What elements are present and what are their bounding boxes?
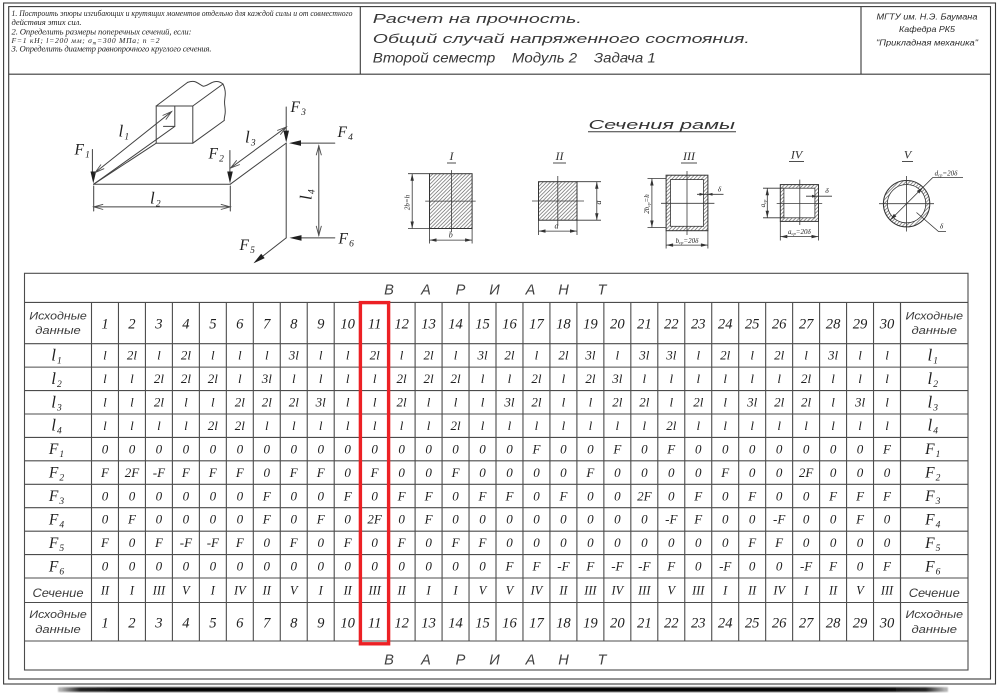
svg-text:2l: 2l [666, 418, 677, 433]
svg-text:II: II [100, 584, 110, 598]
svg-text:0: 0 [776, 559, 783, 574]
svg-text:9: 9 [317, 317, 325, 333]
svg-text:0: 0 [237, 512, 244, 527]
svg-text:24: 24 [718, 317, 733, 333]
svg-text:Кафедра РК5: Кафедра РК5 [899, 24, 955, 34]
svg-text:3l: 3l [854, 395, 866, 410]
svg-text:4: 4 [182, 317, 189, 333]
svg-text:l: l [400, 348, 404, 363]
svg-text:l: l [589, 418, 593, 433]
svg-text:0: 0 [722, 488, 729, 503]
svg-text:F: F [208, 465, 218, 480]
svg-text:l: l [643, 418, 647, 433]
svg-text:F: F [828, 488, 838, 503]
svg-text:0: 0 [560, 535, 567, 550]
svg-text:0: 0 [452, 441, 459, 456]
svg-text:24: 24 [718, 615, 733, 631]
svg-text:3l: 3l [315, 395, 327, 410]
svg-text:F: F [612, 441, 622, 456]
svg-text:0: 0 [102, 512, 109, 527]
svg-text:F: F [235, 465, 245, 480]
svg-text:F: F [397, 535, 407, 550]
svg-text:0: 0 [695, 441, 702, 456]
svg-text:I: I [426, 584, 432, 598]
svg-text:3l: 3l [288, 348, 300, 363]
svg-text:II: II [555, 149, 565, 163]
svg-text:0: 0 [560, 512, 567, 527]
svg-text:28: 28 [826, 615, 841, 631]
svg-text:0: 0 [264, 535, 271, 550]
svg-text:l: l [508, 371, 512, 386]
svg-text:III: III [682, 149, 696, 163]
svg-text:0: 0 [398, 465, 405, 480]
svg-text:F: F [882, 488, 892, 503]
svg-text:0: 0 [695, 465, 702, 480]
svg-text:III: III [691, 584, 705, 598]
svg-text:"Прикладная механика": "Прикладная механика" [876, 37, 979, 47]
svg-text:l: l [616, 418, 620, 433]
svg-text:0: 0 [371, 441, 378, 456]
svg-text:l: l [858, 418, 862, 433]
svg-text:0: 0 [210, 441, 217, 456]
svg-text:F: F [262, 512, 272, 527]
svg-text:И: И [489, 652, 500, 668]
svg-text:l: l [831, 371, 835, 386]
svg-text:Сечение: Сечение [909, 586, 960, 600]
svg-text:15: 15 [475, 317, 490, 333]
svg-text:Р: Р [456, 283, 466, 299]
svg-text:0: 0 [210, 559, 217, 574]
svg-text:l: l [508, 418, 512, 433]
svg-text:2l: 2l [370, 348, 381, 363]
svg-text:I: I [722, 584, 728, 598]
svg-text:0: 0 [587, 441, 594, 456]
svg-text:l: l [481, 371, 485, 386]
svg-text:-F: -F [557, 559, 570, 574]
svg-text:0: 0 [830, 535, 837, 550]
svg-text:F: F [828, 559, 838, 574]
svg-text:20: 20 [610, 317, 625, 333]
svg-text:0: 0 [533, 535, 540, 550]
svg-text:14: 14 [448, 615, 463, 631]
svg-text:0: 0 [884, 535, 891, 550]
svg-text:0: 0 [695, 535, 702, 550]
svg-text:0: 0 [102, 441, 109, 456]
svg-text:2l: 2l [450, 371, 461, 386]
svg-text:13: 13 [421, 317, 436, 333]
svg-text:F: F [666, 559, 676, 574]
svg-text:22: 22 [664, 317, 679, 333]
svg-text:2l: 2l [801, 371, 812, 386]
svg-text:0: 0 [264, 559, 271, 574]
svg-text:l: l [130, 418, 134, 433]
svg-text:0: 0 [183, 488, 190, 503]
svg-text:0: 0 [398, 512, 405, 527]
svg-text:0: 0 [317, 535, 324, 550]
svg-text:2l: 2l [450, 418, 461, 433]
svg-text:F: F [882, 441, 892, 456]
svg-text:0: 0 [857, 559, 864, 574]
svg-text:δ: δ [718, 185, 722, 194]
svg-text:3l: 3l [584, 348, 596, 363]
svg-text:Исходные: Исходные [906, 609, 964, 621]
svg-text:Второй семестр Модуль 2: Второй семестр Модуль 2 Задача 1 [373, 50, 656, 65]
svg-text:l: l [804, 348, 808, 363]
svg-text:11: 11 [368, 615, 382, 631]
svg-text:0: 0 [776, 465, 783, 480]
svg-text:l: l [319, 371, 323, 386]
svg-text:2: 2 [128, 317, 135, 333]
svg-text:l: l [831, 418, 835, 433]
svg-text:Исходные: Исходные [906, 310, 964, 322]
svg-text:А: А [525, 283, 536, 299]
svg-text:0: 0 [668, 535, 675, 550]
svg-text:10: 10 [340, 615, 355, 631]
svg-text:0: 0 [237, 559, 244, 574]
svg-text:3l: 3l [476, 348, 488, 363]
svg-text:0: 0 [210, 488, 217, 503]
svg-text:l: l [562, 418, 566, 433]
svg-text:19: 19 [583, 615, 598, 631]
svg-text:F: F [100, 535, 110, 550]
svg-text:0: 0 [452, 559, 459, 574]
svg-text:l: l [184, 418, 188, 433]
svg-text:25: 25 [745, 317, 760, 333]
svg-text:0: 0 [479, 559, 486, 574]
svg-text:2: 2 [128, 615, 135, 631]
svg-text:l: l [804, 418, 808, 433]
svg-text:F: F [262, 488, 272, 503]
svg-text:4: 4 [182, 615, 189, 631]
svg-text:0: 0 [506, 535, 513, 550]
svg-text:2l: 2l [127, 348, 138, 363]
svg-text:l: l [535, 418, 539, 433]
svg-text:0: 0 [425, 441, 432, 456]
svg-text:3: 3 [154, 615, 162, 631]
svg-text:17: 17 [529, 615, 544, 631]
svg-text:21: 21 [637, 615, 652, 631]
svg-text:26: 26 [772, 615, 787, 631]
svg-text:I: I [210, 584, 216, 598]
svg-text:F: F [316, 465, 326, 480]
svg-text:l: l [346, 371, 350, 386]
svg-text:l: l [696, 348, 700, 363]
svg-text:F: F [558, 488, 568, 503]
svg-text:0: 0 [506, 512, 513, 527]
svg-text:IV: IV [233, 584, 247, 598]
svg-text:0: 0 [479, 512, 486, 527]
svg-text:δ: δ [940, 222, 944, 231]
svg-text:15: 15 [475, 615, 490, 631]
svg-text:l: l [723, 371, 727, 386]
svg-text:l: l [777, 418, 781, 433]
svg-text:0: 0 [371, 488, 378, 503]
svg-text:2l: 2l [558, 348, 569, 363]
svg-text:0: 0 [237, 488, 244, 503]
svg-text:0: 0 [776, 488, 783, 503]
svg-text:l: l [319, 418, 323, 433]
svg-text:0: 0 [237, 441, 244, 456]
svg-text:F: F [100, 465, 110, 480]
svg-text:0: 0 [210, 512, 217, 527]
svg-text:данные: данные [35, 325, 81, 337]
svg-text:2l: 2l [424, 371, 435, 386]
svg-text:l: l [750, 418, 754, 433]
svg-text:II: II [262, 584, 272, 598]
svg-text:F: F [531, 559, 541, 574]
svg-text:2l: 2l [774, 348, 785, 363]
svg-text:III: III [880, 584, 894, 598]
svg-text:l: l [696, 371, 700, 386]
svg-text:0: 0 [614, 535, 621, 550]
svg-text:3l: 3l [261, 371, 273, 386]
svg-text:5: 5 [209, 615, 216, 631]
svg-text:А: А [420, 283, 431, 299]
svg-text:0: 0 [587, 535, 594, 550]
svg-text:-F: -F [800, 559, 813, 574]
svg-text:-F: -F [665, 512, 678, 527]
svg-text:Н: Н [558, 283, 569, 299]
svg-text:2F: 2F [637, 488, 653, 503]
svg-text:2F: 2F [367, 512, 383, 527]
svg-text:l: l [103, 348, 107, 363]
svg-text:0: 0 [749, 441, 756, 456]
svg-text:26: 26 [772, 317, 787, 333]
svg-text:0: 0 [344, 512, 351, 527]
svg-text:0: 0 [425, 465, 432, 480]
svg-text:Исходные: Исходные [29, 609, 87, 621]
svg-text:2l: 2l [181, 371, 192, 386]
svg-text:2l: 2l [235, 395, 246, 410]
svg-text:В: В [384, 652, 394, 668]
svg-text:0: 0 [129, 559, 136, 574]
svg-text:0: 0 [291, 441, 298, 456]
svg-text:0: 0 [398, 441, 405, 456]
svg-text:F: F [505, 559, 515, 574]
svg-text:l: l [292, 371, 296, 386]
svg-text:0: 0 [722, 512, 729, 527]
svg-text:13: 13 [421, 615, 436, 631]
svg-text:l: l [130, 395, 134, 410]
svg-text:17: 17 [529, 317, 544, 333]
svg-text:0: 0 [884, 512, 891, 527]
svg-text:l: l [103, 418, 107, 433]
svg-text:21: 21 [637, 317, 652, 333]
svg-text:0: 0 [371, 559, 378, 574]
svg-text:0: 0 [183, 559, 190, 574]
svg-text:II: II [828, 584, 838, 598]
svg-text:F: F [747, 488, 757, 503]
svg-text:F: F [181, 465, 191, 480]
svg-text:2l: 2l [585, 371, 596, 386]
svg-text:1: 1 [101, 615, 108, 631]
svg-text:l: l [481, 395, 485, 410]
svg-text:0: 0 [479, 465, 486, 480]
svg-text:23: 23 [691, 317, 706, 333]
svg-text:Н: Н [558, 652, 569, 668]
svg-text:II: II [747, 584, 757, 598]
svg-text:6: 6 [236, 317, 244, 333]
svg-text:-F: -F [719, 559, 732, 574]
svg-text:l: l [103, 371, 107, 386]
svg-text:9: 9 [317, 615, 325, 631]
svg-text:2l: 2l [154, 371, 165, 386]
svg-text:F: F [316, 512, 326, 527]
svg-text:3l: 3l [827, 348, 839, 363]
svg-text:IV: IV [772, 584, 786, 598]
svg-text:0: 0 [749, 512, 756, 527]
svg-text:3: 3 [154, 317, 162, 333]
svg-text:0: 0 [344, 465, 351, 480]
svg-text:0: 0 [587, 512, 594, 527]
svg-text:0: 0 [183, 441, 190, 456]
svg-text:0: 0 [614, 512, 621, 527]
svg-text:0: 0 [156, 512, 163, 527]
svg-text:l: l [831, 395, 835, 410]
svg-text:0: 0 [317, 441, 324, 456]
svg-text:l: l [238, 371, 242, 386]
svg-text:IV: IV [611, 584, 625, 598]
svg-text:30: 30 [879, 317, 895, 333]
svg-text:l: l [885, 418, 889, 433]
svg-text:I: I [803, 584, 809, 598]
svg-text:0: 0 [857, 535, 864, 550]
svg-text:l: l [562, 395, 566, 410]
svg-text:l: l [454, 348, 458, 363]
svg-text:0: 0 [803, 535, 810, 550]
svg-text:IV: IV [530, 584, 544, 598]
svg-text:0: 0 [129, 488, 136, 503]
svg-text:А: А [525, 652, 536, 668]
svg-text:16: 16 [502, 317, 517, 333]
svg-text:2l: 2l [693, 395, 704, 410]
svg-text:b: b [449, 230, 453, 239]
svg-text:l: l [157, 348, 161, 363]
svg-text:III: III [583, 584, 597, 598]
svg-text:l: l [157, 418, 161, 433]
svg-text:Сечения рамы: Сечения рамы [589, 117, 736, 132]
svg-text:0: 0 [668, 465, 675, 480]
svg-text:29: 29 [853, 615, 868, 631]
svg-text:В: В [384, 283, 394, 299]
svg-text:l: l [427, 395, 431, 410]
svg-text:F: F [127, 512, 137, 527]
svg-text:данные: данные [35, 624, 81, 636]
svg-text:l: l [373, 418, 377, 433]
svg-text:0: 0 [560, 465, 567, 480]
svg-text:0: 0 [317, 488, 324, 503]
svg-text:-F: -F [153, 465, 166, 480]
svg-text:0: 0 [452, 488, 459, 503]
svg-text:7: 7 [263, 317, 271, 333]
svg-text:11: 11 [368, 317, 382, 333]
svg-text:IV: IV [790, 148, 804, 162]
svg-text:Р: Р [456, 652, 466, 668]
svg-text:0: 0 [830, 465, 837, 480]
svg-text:8: 8 [290, 317, 298, 333]
svg-text:2l: 2l [774, 395, 785, 410]
svg-text:F: F [720, 465, 730, 480]
svg-text:0: 0 [129, 535, 136, 550]
svg-text:0: 0 [749, 559, 756, 574]
svg-text:Исходные: Исходные [29, 310, 87, 322]
svg-text:0: 0 [506, 441, 513, 456]
svg-text:0: 0 [425, 559, 432, 574]
svg-text:l: l [373, 395, 377, 410]
svg-text:a: a [594, 201, 603, 205]
svg-text:l: l [346, 348, 350, 363]
svg-text:F: F [343, 535, 353, 550]
svg-text:-F: -F [180, 535, 193, 550]
svg-text:8: 8 [290, 615, 298, 631]
svg-text:0: 0 [776, 441, 783, 456]
svg-text:I: I [452, 584, 458, 598]
svg-text:a: a [555, 222, 559, 231]
svg-text:2l: 2l [262, 395, 273, 410]
svg-text:0: 0 [102, 488, 109, 503]
svg-text:Расчет на прочность.: Расчет на прочность. [373, 11, 582, 26]
svg-text:16: 16 [502, 615, 517, 631]
svg-text:0: 0 [560, 441, 567, 456]
svg-text:0: 0 [264, 465, 271, 480]
svg-text:l: l [184, 395, 188, 410]
svg-text:2l: 2l [397, 371, 408, 386]
svg-text:2l: 2l [531, 395, 542, 410]
svg-text:3l: 3l [611, 371, 623, 386]
svg-text:28: 28 [826, 317, 841, 333]
svg-text:0: 0 [506, 465, 513, 480]
svg-text:0: 0 [533, 512, 540, 527]
svg-text:0: 0 [803, 512, 810, 527]
svg-text:12: 12 [394, 317, 409, 333]
svg-text:2l: 2l [720, 348, 731, 363]
svg-text:0: 0 [156, 488, 163, 503]
svg-text:22: 22 [664, 615, 679, 631]
svg-text:l: l [427, 418, 431, 433]
svg-text:0: 0 [830, 512, 837, 527]
svg-text:l: l [535, 348, 539, 363]
svg-text:2l: 2l [639, 395, 650, 410]
svg-text:III: III [152, 584, 166, 598]
svg-text:III: III [368, 584, 382, 598]
svg-text:0: 0 [857, 465, 864, 480]
svg-text:0: 0 [803, 441, 810, 456]
svg-text:F: F [397, 488, 407, 503]
svg-text:Т: Т [598, 283, 608, 299]
svg-text:3. Определить диаметр равнопро: 3. Определить диаметр равнопрочного круг… [11, 44, 212, 54]
svg-text:2l: 2l [612, 395, 623, 410]
svg-text:0: 0 [722, 535, 729, 550]
svg-text:F: F [478, 488, 488, 503]
svg-text:l: l [346, 395, 350, 410]
svg-text:0: 0 [156, 441, 163, 456]
svg-text:2F: 2F [125, 465, 141, 480]
svg-text:l: l [723, 395, 727, 410]
svg-text:I: I [318, 584, 324, 598]
svg-text:данные: данные [912, 325, 958, 337]
svg-text:19: 19 [583, 317, 598, 333]
svg-text:l: l [373, 371, 377, 386]
svg-text:l: l [723, 418, 727, 433]
svg-text:l: l [265, 348, 269, 363]
svg-text:0: 0 [722, 441, 729, 456]
svg-text:F: F [154, 535, 164, 550]
svg-text:l: l [669, 371, 673, 386]
svg-text:18: 18 [556, 615, 571, 631]
svg-text:2l: 2l [801, 395, 812, 410]
svg-text:l: l [669, 395, 673, 410]
svg-text:27: 27 [799, 317, 814, 333]
